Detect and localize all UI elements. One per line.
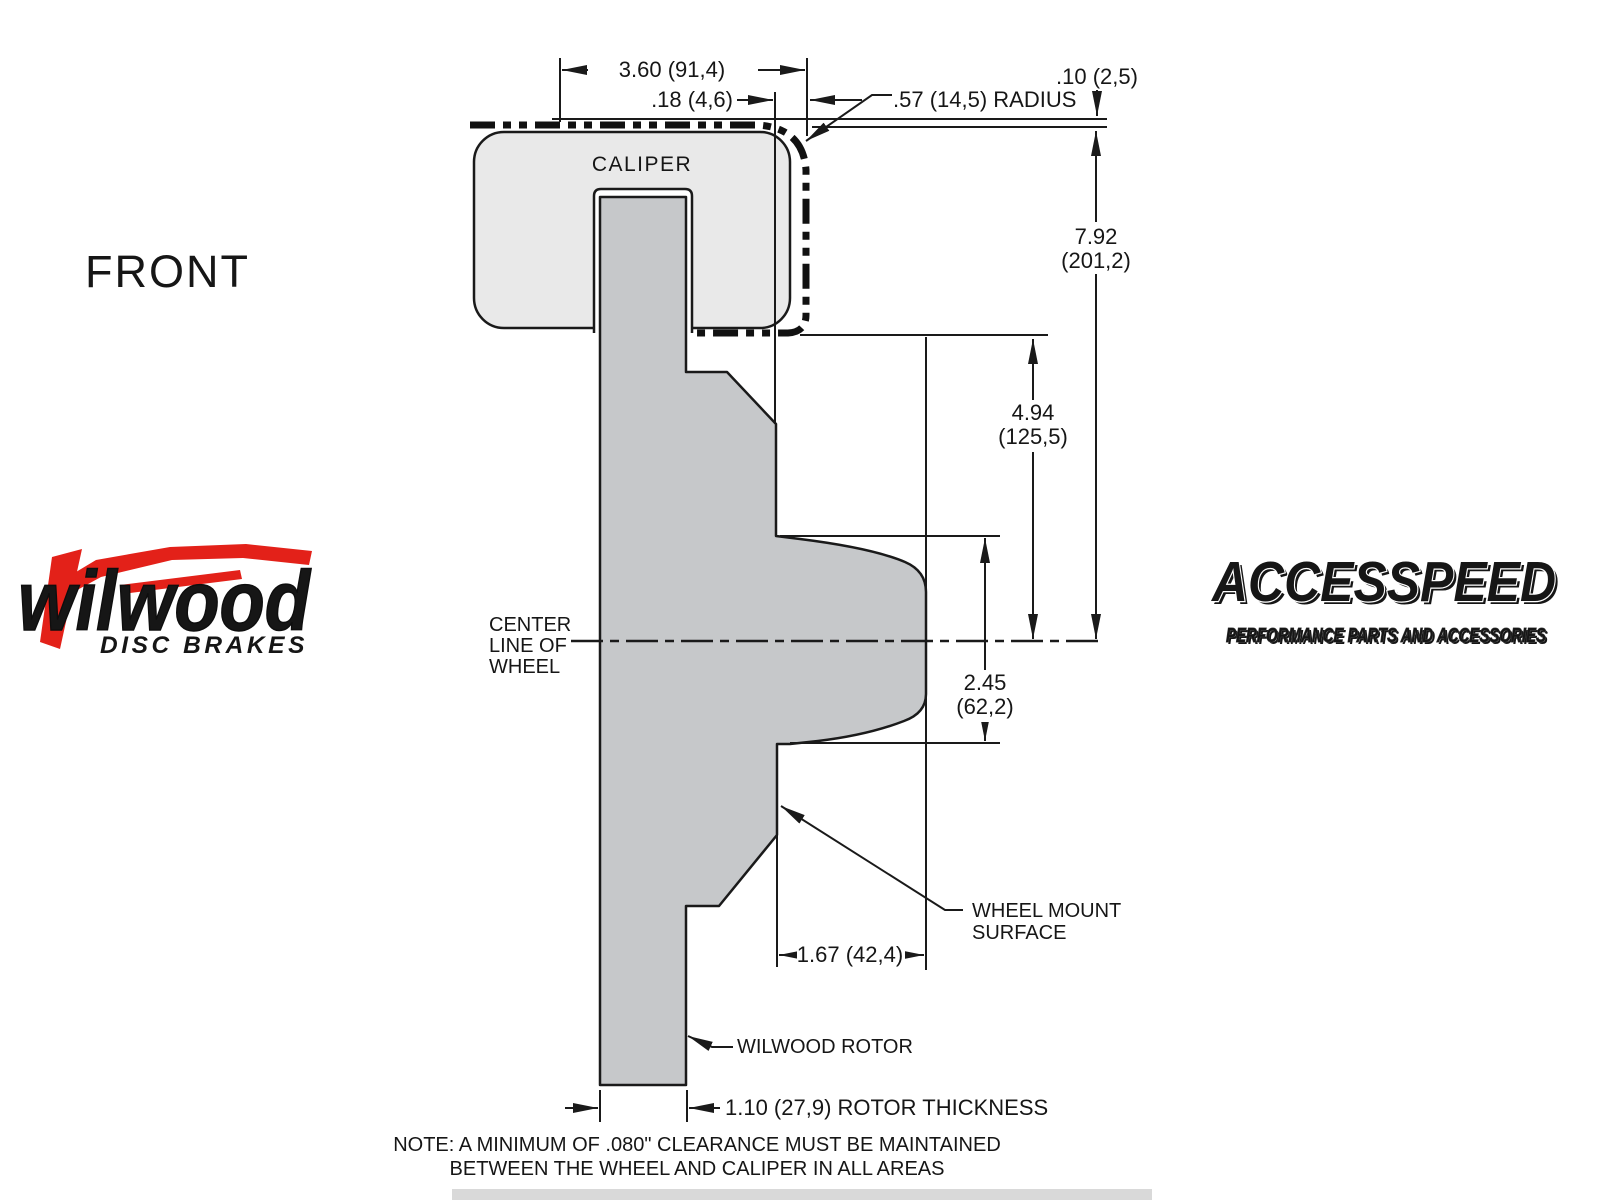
dim-wheel-to-centerline-mm: (201,2) — [1061, 248, 1131, 273]
dim-wheel-clearance: .10 (2,5) — [1056, 64, 1138, 89]
wilwood-logo: wilwood DISC BRAKES — [18, 544, 312, 659]
wilwood-rotor-label: WILWOOD ROTOR — [737, 1036, 913, 1058]
wheel-mount-surface-label-line1: WHEEL MOUNT — [972, 900, 1121, 922]
bottom-edge-strip — [452, 1189, 1152, 1200]
caliper-label: CALIPER — [592, 153, 692, 176]
wheel-mount-surface-label-line2: SURFACE — [972, 922, 1066, 944]
accesspeed-tagline: PERFORMANCE PARTS AND ACCESSORIES — [1226, 625, 1546, 647]
rotor-leader-arrow — [688, 1036, 733, 1047]
dim-mount-depth: 1.67 (42,4) — [797, 942, 903, 967]
note-line2: BETWEEN THE WHEEL AND CALIPER IN ALL ARE… — [450, 1158, 945, 1180]
dim-wheel-to-centerline-in: 7.92 — [1075, 224, 1118, 249]
brake-dimension-diagram-page: FRONT CALIPER 3.60 (91,4) .18 (4,6) .57 … — [0, 0, 1600, 1200]
dim-hat-depth-mm: (62,2) — [956, 694, 1013, 719]
wilwood-tagline: DISC BRAKES — [100, 632, 308, 659]
accesspeed-wordmark: ACCESSPEED — [1210, 550, 1556, 614]
dim-caliper-to-centerline-in: 4.94 — [1012, 400, 1055, 425]
dim-caliper-to-centerline-mm: (125,5) — [998, 424, 1068, 449]
centerline-label-line3: WHEEL — [489, 656, 560, 678]
dim-rotor-thickness: 1.10 (27,9) ROTOR THICKNESS — [725, 1095, 1048, 1120]
dim-caliper-width: 3.60 (91,4) — [619, 57, 725, 82]
dim-hat-depth-in: 2.45 — [964, 670, 1007, 695]
wheel-mount-leader-arrow — [781, 806, 963, 910]
centerline-label-line2: LINE OF — [489, 635, 567, 657]
dim-pad-offset: .18 (4,6) — [651, 87, 733, 112]
centerline-label-line1: CENTER — [489, 614, 571, 636]
technical-drawing-canvas: FRONT CALIPER 3.60 (91,4) .18 (4,6) .57 … — [0, 0, 1600, 1200]
front-view-label: FRONT — [85, 246, 250, 297]
note-line1: NOTE: A MINIMUM OF .080" CLEARANCE MUST … — [393, 1134, 1001, 1156]
accesspeed-logo: ACCESSPEED ACCESSPEED PERFORMANCE PARTS … — [1210, 550, 1559, 649]
dim-corner-radius: .57 (14,5) RADIUS — [893, 87, 1076, 112]
